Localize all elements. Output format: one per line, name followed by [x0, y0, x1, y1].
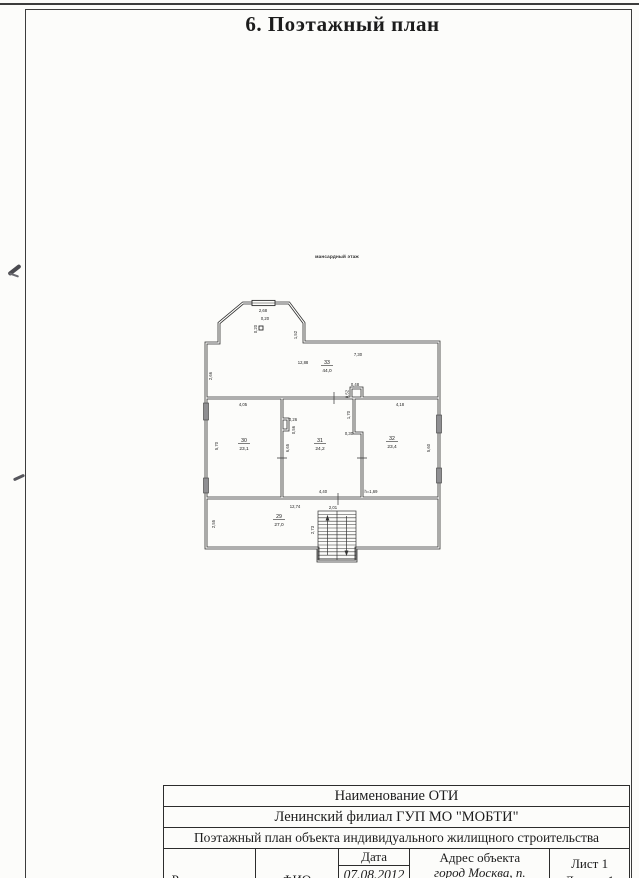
dim-bay-width: 2,68 — [259, 308, 268, 313]
dim-niche-w: 0,26 — [289, 417, 298, 422]
scan-artifact — [13, 474, 25, 482]
dim-r32-h: 5,60 — [426, 443, 431, 452]
stamp-row-oti: Наименование ОТИ — [164, 786, 629, 807]
dim-stair-len: 2,73 — [310, 525, 315, 534]
dim-r30-h: 5,70 — [214, 441, 219, 450]
dim-r31-w: 4,40 — [319, 489, 328, 494]
dim-r32-w: 4,18 — [396, 402, 405, 407]
room-29-number: 29 — [276, 514, 282, 520]
window-icon — [437, 415, 442, 433]
room-33-number: 33 — [324, 360, 330, 366]
scan-top-line — [0, 3, 639, 5]
scanned-document-page: 6. Поэтажный план — [0, 0, 639, 878]
window-icon — [204, 478, 209, 493]
dim-r30-w: 4,05 — [239, 402, 248, 407]
dim-duct-w: 0,48 — [351, 382, 360, 387]
dim-niche-h: 0,56 — [291, 425, 296, 434]
dim-bay-side: 1,52 — [293, 330, 298, 339]
height-note: h=1,69 — [365, 489, 379, 494]
room-30-number: 30 — [241, 438, 247, 444]
dim-top-right: 7,30 — [354, 352, 363, 357]
scan-artifact — [9, 272, 19, 277]
dim-left-upper: 2,66 — [208, 371, 213, 380]
floor-label: мансардный этаж — [315, 253, 359, 259]
dim-r29-h: 2,55 — [211, 519, 216, 528]
room-32-area: 23,4 — [387, 444, 397, 450]
chimney-icon — [259, 326, 263, 330]
page-title: 6. Поэтажный план — [25, 12, 632, 37]
stamp-row-branch: Ленинский филиал ГУП МО "МОБТИ" — [164, 807, 629, 828]
fio-cell: ФИО — [256, 849, 339, 878]
dim-jog-len: 1,70 — [346, 410, 351, 419]
window-icon — [437, 468, 442, 483]
address-label: Адрес объекта — [410, 850, 549, 865]
address-line1: город Москва, п. — [410, 865, 549, 878]
date-cell: Дата 07.08.2012 — [339, 849, 411, 878]
stamp-footer-row: Руководитель ФИО Дата 07.08.2012 Адрес о… — [164, 849, 629, 878]
role-cell: Руководитель — [164, 849, 256, 878]
dim-r29-w: 12,74 — [290, 504, 301, 509]
date-label: Дата — [339, 849, 410, 866]
dim-chimney-h: 0,20 — [253, 324, 258, 333]
dim-chimney-w: 0,20 — [261, 316, 270, 321]
walls — [206, 303, 439, 561]
staircase — [318, 511, 356, 560]
sheet-number: Лист 1 — [550, 855, 629, 872]
dim-r33-width: 12,88 — [298, 360, 309, 365]
room-29-area: 27,0 — [274, 522, 284, 528]
room-31-area: 24,2 — [315, 446, 325, 452]
date-value: 07.08.2012 — [339, 866, 410, 878]
room-33-area: 44,0 — [322, 368, 332, 374]
stamp-table: Наименование ОТИ Ленинский филиал ГУП МО… — [163, 785, 630, 878]
stamp-row-doc-title: Поэтажный план объекта индивидуального ж… — [164, 828, 629, 849]
sheets-total: Листов 1 — [550, 872, 629, 878]
dim-duct-h: 0,52 — [345, 389, 350, 398]
floor-plan: мансардный этаж 2,68 0,20 0,20 1,52 7,30… — [185, 245, 455, 575]
sheet-cell: Лист 1 Листов 1 — [550, 849, 629, 878]
dim-r31-wall: 6,65 — [285, 443, 290, 452]
dim-stair-w: 2,01 — [329, 505, 338, 510]
dim-jog-off: 0,30 — [345, 431, 354, 436]
window-icon — [204, 403, 209, 420]
address-cell: Адрес объекта город Москва, п. «Сосенско… — [410, 849, 550, 878]
room-32-number: 32 — [389, 436, 395, 442]
room-31-number: 31 — [317, 438, 323, 444]
room-30-area: 23,1 — [239, 446, 249, 452]
